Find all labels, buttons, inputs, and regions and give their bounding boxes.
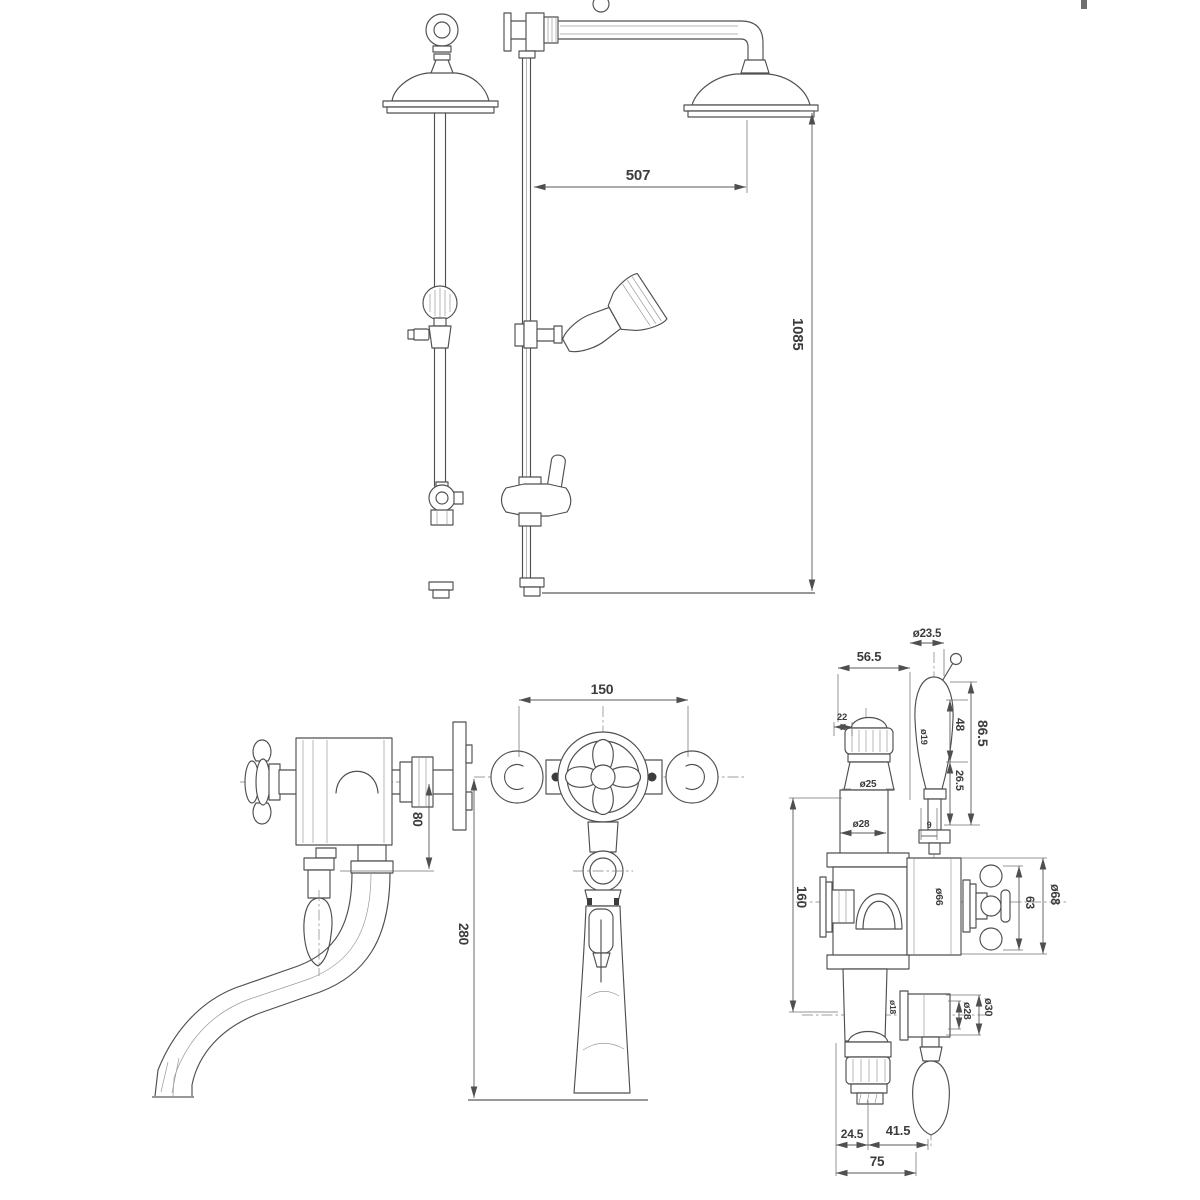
dim-label-handle-center-offset: 56.5: [857, 649, 882, 664]
dim-handle-grip-dia: ø19: [918, 729, 929, 745]
down-lever-grip: [913, 1061, 950, 1135]
spout-mouth-lines: [161, 1058, 179, 1093]
dim-label-outlet-dia: ø28: [961, 1002, 973, 1020]
cartridge-drum: [907, 858, 961, 955]
nut-accent: [614, 898, 619, 905]
handset-bracket: [524, 321, 537, 348]
slider-side-knob-cap: [408, 330, 414, 339]
dim-label-cartridge-dia: ø66: [933, 888, 945, 906]
dim-label-front-union-centers: 150: [591, 681, 614, 697]
scan-artifact-mark: [1081, 0, 1087, 9]
nut-accent: [587, 898, 592, 905]
shower-head-rim: [688, 111, 814, 117]
dim-handle-lower-len: 26.5: [944, 762, 980, 825]
spout-mid-line: [173, 873, 371, 1096]
head-neck: [741, 60, 769, 73]
riser-collar: [519, 51, 535, 58]
dim-riser-height: 1085: [789, 111, 818, 591]
bath-filler-side-view: [152, 722, 472, 1097]
lever-collar: [304, 858, 334, 870]
wall-flange: [504, 13, 511, 51]
dim-label-port-spacing: 160: [794, 886, 809, 908]
handle-stem: [279, 770, 297, 794]
cross-handle-cap: [1001, 890, 1010, 922]
hanging-ring-inner: [434, 22, 450, 38]
dim-cartridge-dia: ø66: [933, 888, 945, 906]
dim-label-handle-knob-dia: ø23.5: [913, 628, 942, 640]
dim-handle-knob-dia: ø23.5: [910, 628, 944, 676]
lever-pin-ball: [951, 654, 962, 665]
cross-handle-lobe: [980, 928, 1002, 950]
technical-drawing-page: 507 1085: [0, 0, 1200, 1200]
shower-head-bell-front: [392, 73, 489, 101]
top-port-collar: [848, 754, 890, 762]
pipe-end-cap: [524, 587, 540, 596]
diverter-bottom-nut: [519, 513, 541, 526]
temp-lever-collar: [924, 789, 946, 799]
dim-label-top-tube-dia: ø28: [853, 819, 870, 830]
union-collar: [400, 762, 412, 802]
lower-neck: [588, 822, 618, 852]
right-flange: [963, 880, 970, 932]
outlet-elbow: [908, 994, 950, 1037]
shower-head-rim: [383, 101, 498, 107]
right-flange-inner: [970, 884, 976, 928]
arm-bend-inner: [741, 39, 748, 60]
shower-head-rim: [684, 105, 818, 111]
fixing-dot: [648, 773, 657, 782]
bottom-collar: [851, 1084, 887, 1093]
cross-handle-boss: [269, 764, 280, 800]
bottom-port-band: [845, 1042, 891, 1057]
dim-label-flange-dia: ø68: [1048, 884, 1062, 905]
left-union-elbow: [491, 751, 543, 803]
dim-label-handle-grip-dia: ø19: [918, 729, 929, 745]
handset-bracket-clamp: [515, 324, 524, 346]
eye-fitting-tab: [454, 492, 463, 504]
slider-bracket: [429, 326, 451, 348]
technical-drawing-canvas: 507 1085: [0, 0, 1200, 1200]
handset-holder-cap: [554, 326, 562, 343]
dim-outlet-stub-dia: ø18: [888, 1000, 898, 1015]
top-port-dome: [851, 718, 887, 729]
handset-holder-arm: [537, 329, 555, 341]
cross-handle-hub: [256, 759, 270, 805]
cross-handle-lobe: [980, 865, 1002, 887]
eye-fitting-nut: [431, 510, 453, 525]
eye-fitting: [429, 485, 455, 511]
bottom-ribbed-nut: [846, 1057, 890, 1084]
dim-label-base-left: 24.5: [841, 1127, 864, 1141]
outlet-flange: [900, 991, 908, 1040]
lower-tube: [843, 969, 887, 1041]
slider-neck: [434, 318, 446, 326]
wall-plate-tab: [466, 745, 472, 763]
body-bottom-collar: [827, 955, 909, 969]
dim-label-front-body-to-handle: 280: [456, 923, 471, 945]
left-wall-flange: [820, 877, 826, 937]
arm-tee: [526, 13, 544, 51]
dim-label-handle-lower-len: 26.5: [953, 770, 965, 791]
dim-label-handle-total-len: 86.5: [975, 720, 991, 747]
dim-label-outlet-flange-dia: ø30: [982, 998, 994, 1016]
dim-arm-projection: 507: [534, 120, 747, 193]
shower-column-side-view: [502, 0, 819, 596]
wall-plate-tab: [466, 792, 472, 810]
dim-label-arm-projection: 507: [626, 167, 650, 184]
pipe-end-cap: [433, 590, 449, 598]
cross-handle-center: [981, 896, 1001, 916]
valve-front-view: [468, 706, 745, 1100]
dim-label-handle-grip-len: 48: [953, 718, 967, 731]
pipe-end-flange: [429, 582, 453, 590]
ring-collar: [433, 46, 451, 52]
dim-label-riser-height: 1085: [789, 318, 806, 351]
outlet-neck: [358, 845, 386, 861]
union-nut: [412, 757, 433, 807]
dim-label-side-outlet-drop: 80: [410, 812, 425, 827]
dim-label-base-right: 41.5: [886, 1123, 911, 1138]
down-lever-stem: [922, 1037, 939, 1047]
dim-handle-total-len: 86.5: [950, 682, 991, 825]
right-union-elbow: [666, 751, 718, 803]
left-wall-flange-inner: [826, 882, 832, 932]
dim-label-top-nut-dia: ø25: [860, 779, 877, 790]
slider-side-knob: [413, 329, 429, 340]
cross-handle-top-lobe: [253, 740, 271, 761]
dim-label-outlet-stub-dia: ø18: [888, 1000, 898, 1015]
shower-head-rim: [387, 107, 494, 113]
left-hex-nut: [832, 890, 854, 923]
spout-outer-edge: [192, 873, 390, 1096]
body-top-collar: [827, 853, 909, 867]
wall-plate: [453, 722, 466, 830]
hanging-ring-side: [593, 0, 609, 12]
diverter-body: [502, 484, 571, 516]
dim-label-top-port-offset: 22: [837, 712, 847, 723]
hanging-ring-outer: [426, 14, 458, 46]
dim-label-stem-offset: 9: [927, 820, 932, 830]
temp-lever-nut: [919, 830, 950, 843]
dim-label-cross-handle-span: 63: [1023, 896, 1037, 909]
ring-collar: [434, 54, 450, 60]
shower-head-bell-side: [692, 74, 810, 105]
handshower: [552, 271, 668, 369]
lever-boss: [316, 848, 336, 858]
down-lever-taper: [920, 1047, 942, 1061]
head-stem: [431, 60, 453, 73]
cross-handle-bottom-lobe: [253, 803, 271, 824]
arm-bend-outer: [741, 21, 763, 60]
dim-label-base-total: 75: [870, 1154, 885, 1169]
temp-lever-stem: [929, 843, 940, 854]
pipe-end-flange: [520, 578, 544, 587]
shower-column-front-view: [383, 14, 498, 598]
